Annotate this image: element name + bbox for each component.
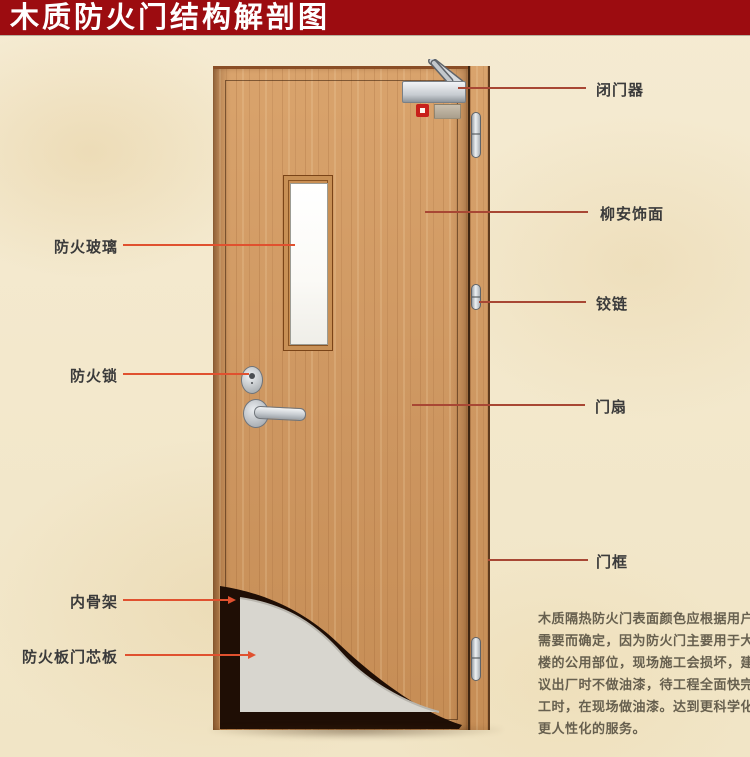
label-inner-skeleton: 内骨架 bbox=[0, 591, 118, 612]
label-door-frame: 门框 bbox=[596, 551, 628, 572]
fire-glass-pane bbox=[290, 183, 328, 345]
door-closer-body bbox=[402, 81, 466, 103]
leader-fire-lock bbox=[123, 373, 249, 375]
description-line: 楼的公用部位，现场施工会损坏，建 bbox=[538, 652, 746, 674]
arrowhead-icon bbox=[248, 651, 256, 659]
leader-fire-board-core bbox=[125, 654, 249, 656]
fire-board-core-panel bbox=[240, 598, 439, 712]
leader-door-leaf bbox=[412, 404, 585, 406]
description-line: 工时，在现场做油漆。达到更科学化 bbox=[538, 696, 746, 718]
page-title: 木质防火门结构解剖图 bbox=[10, 1, 330, 35]
door-frame-strip bbox=[468, 66, 490, 730]
label-fire-board-core: 防火板门芯板 bbox=[0, 646, 118, 667]
description-line: 木质隔热防火门表面颜色应根据用户 bbox=[538, 608, 746, 630]
leader-door-closer bbox=[458, 87, 586, 89]
label-fire-lock: 防火锁 bbox=[0, 365, 118, 386]
metal-plate bbox=[434, 104, 461, 119]
label-lauan-veneer: 柳安饰面 bbox=[600, 203, 664, 224]
leader-fire-glass bbox=[123, 244, 295, 246]
hinge-top bbox=[471, 112, 481, 158]
label-fire-glass: 防火玻璃 bbox=[0, 236, 118, 257]
hinge-middle bbox=[471, 284, 481, 310]
hinge-bottom bbox=[471, 637, 481, 681]
keyhole-escutcheon bbox=[241, 366, 263, 394]
description-line: 需要而确定，因为防火门主要用于大 bbox=[538, 630, 746, 652]
leader-lauan-veneer bbox=[425, 211, 588, 213]
label-door-closer: 闭门器 bbox=[596, 79, 644, 100]
label-door-leaf: 门扇 bbox=[595, 396, 627, 417]
fire-door-diagram-page: 木质防火门结构解剖图 bbox=[0, 0, 750, 757]
door-handle bbox=[254, 406, 307, 422]
label-hinge: 铰链 bbox=[596, 293, 628, 314]
arrowhead-icon bbox=[228, 596, 236, 604]
description-paragraph: 木质隔热防火门表面颜色应根据用户 需要而确定，因为防火门主要用于大 楼的公用部位… bbox=[538, 608, 746, 740]
door-leaf-panel bbox=[213, 66, 468, 730]
leader-door-frame bbox=[488, 559, 588, 561]
door-assembly bbox=[213, 66, 490, 730]
red-label-sticker bbox=[416, 104, 429, 117]
leader-inner-skeleton bbox=[123, 599, 229, 601]
description-line: 议出厂时不做油漆，待工程全面快完 bbox=[538, 674, 746, 696]
door-shadow bbox=[210, 726, 502, 739]
description-line: 更人性化的服务。 bbox=[538, 718, 746, 740]
leader-hinge bbox=[479, 301, 586, 303]
title-banner: 木质防火门结构解剖图 bbox=[0, 0, 750, 35]
vision-window-frame bbox=[283, 175, 333, 351]
